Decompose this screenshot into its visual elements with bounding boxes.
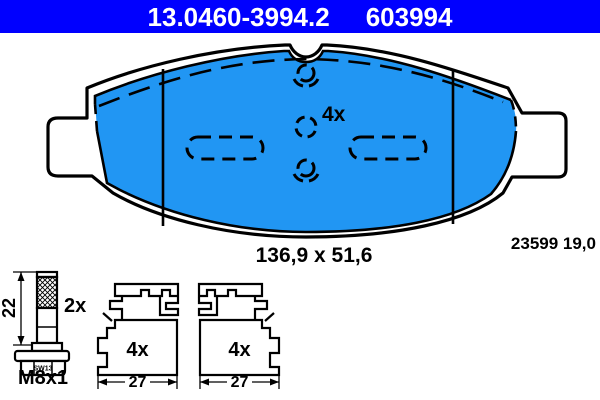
bolt-dim-arrow-up (18, 272, 25, 281)
pad-wva-label: 23599 19,0 (511, 234, 596, 253)
clip-right-drawing: 4x 27 (199, 284, 279, 391)
pad-quantity-label: 4x (322, 103, 346, 126)
pad-dimensions-label: 136,9 x 51,6 (256, 244, 373, 267)
clip-right-quantity-label: 4x (228, 339, 250, 361)
clip-left-drawing: 4x 27 (98, 284, 178, 391)
clip-left-width-label: 27 (129, 374, 147, 391)
guide-bolt-drawing: 22 SW13 2x M8x1 (0, 272, 86, 389)
bolt-thread (37, 277, 57, 308)
clip-left-quantity-label: 4x (126, 339, 148, 361)
bolt-collar (32, 343, 62, 351)
brake-pad-drawing: 4x 136,9 x 51,6 23599 19,0 (48, 45, 596, 267)
clip-right-width-label: 27 (231, 374, 249, 391)
bolt-thread-label: M8x1 (18, 367, 68, 389)
bolt-quantity-label: 2x (64, 295, 86, 317)
bolt-shank (37, 308, 57, 343)
technical-drawing: 4x 136,9 x 51,6 23599 19,0 22 SW13 2x M8… (0, 0, 600, 400)
bolt-flange (15, 351, 69, 361)
bolt-length-label: 22 (0, 298, 19, 318)
bolt-dim-arrow-down (18, 336, 25, 345)
